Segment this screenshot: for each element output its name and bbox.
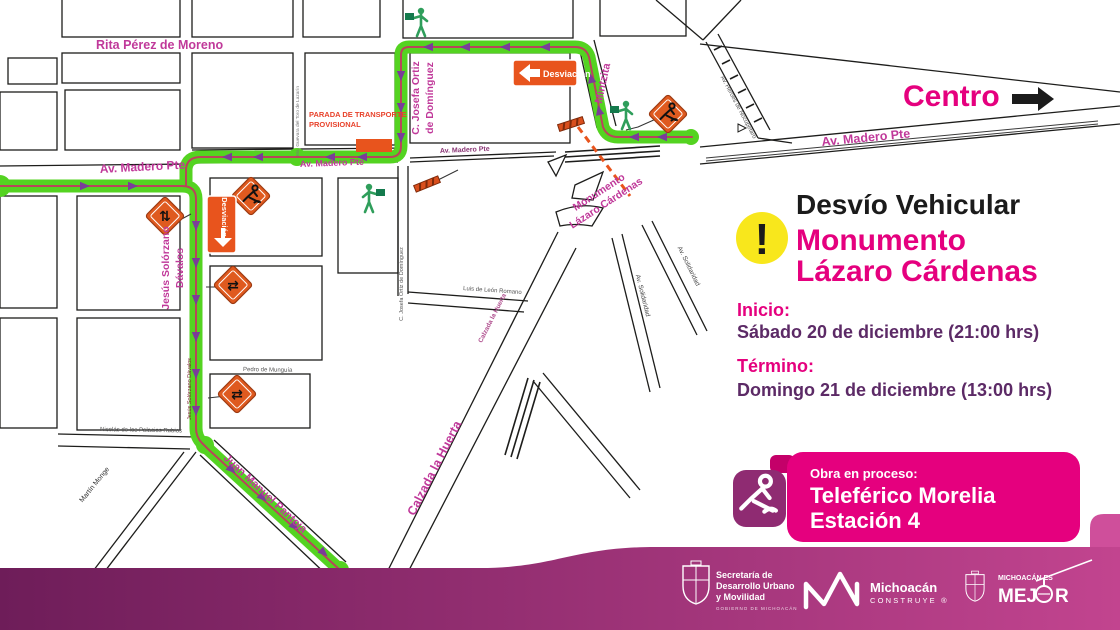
street-label-josefa-small: C. Josefa Ortiz de Domínguez [399,247,405,321]
start-label: Inicio: [737,300,790,320]
street-label-monge: Martín Monge [79,466,112,504]
panel-subject-line2: Lázaro Cárdenas [796,255,1038,288]
street-label-solorzano-line2: Dávalos [174,248,186,288]
street-label-munguia: Pedro de Munguía [243,367,293,374]
mejor-text-post: R [1055,586,1069,607]
obra-kicker: Obra en proceso: [810,466,918,481]
street-label-solidaridad-1: Av. Solidaridad [634,274,651,318]
parada-label-line1: PARADA DE TRANSPORTE [309,110,407,119]
street-label-huerta-big: Calzada la Huerta [405,418,465,518]
alert-exclamation: ! [755,215,770,264]
street-label-solidaridad-2: Av. Solidaridad [676,245,701,287]
roadwork-sign-worker-right [648,94,688,134]
street-label-madero-mid: Av. Madero Pte [300,157,364,169]
sedum-line2: Desarrollo Urbano [716,581,795,591]
parada-label-line2: PROVISIONAL [309,120,361,129]
sedum-subtitle: GOBIERNO DE MICHOACÁN [716,605,798,611]
footer-band [0,547,1120,630]
obra-line2: Estación 4 [810,508,921,533]
street-label-josefa-line1: C. Josefa Ortiz [410,61,422,135]
street-label-madero-left: Av. Madero Pte [99,158,185,176]
street-label-solorzano-small: Jesús Solórzano Dávalos [187,358,193,420]
two-way-horizontal-arrows-icon: ⇄ [231,387,243,403]
street-label-palacios: Nicolás de los Palacios Rubios [100,427,182,434]
desviacion-sign-vertical: Desviación [207,196,236,253]
construye-line1: Michoacán [870,580,937,595]
detour-infographic: ⇅ ⇄ ⇄ PARADA DE TRANSPORTE PROVISIONAL D… [0,0,1120,630]
street-label-solorzano-line1: Jesús Solórzano [160,226,172,309]
desviacion-label: Desviación [543,69,591,79]
right-arrow-icon [1012,87,1054,111]
end-label: Término: [737,356,814,376]
desviacion-sign-horizontal: Desviación [513,60,591,86]
obra-box: Obra en proceso: Teleférico Morelia Esta… [733,452,1080,542]
info-panel: ! Desvío Vehicular Monumento Lázaro Cárd… [736,189,1052,400]
end-value: Domingo 21 de diciembre (13:00 hrs) [737,380,1052,400]
barrier-icon-2 [414,176,441,192]
bus-stop-marker [356,139,392,152]
sedum-line1: Secretaría de [716,570,773,580]
obra-line1: Teleférico Morelia [810,483,996,508]
street-label-pantoja: Juan Manuel Pantoja [221,452,310,536]
street-label-huerta-small: Calzada la Huerta [477,292,508,344]
start-value: Sábado 20 de diciembre (21:00 hrs) [737,322,1039,342]
street-label-rita-perez: Rita Pérez de Moreno [96,38,223,52]
street-label-luis: Luis de León Romano [463,286,523,296]
centro-direction: Centro [903,80,1054,113]
detour-map-graphic: ⇅ ⇄ ⇄ PARADA DE TRANSPORTE PROVISIONAL D… [0,0,1120,630]
mejor-text-pre: MEJ [998,586,1037,607]
construye-line2: CONSTRUYE ® [870,596,949,605]
panel-title: Desvío Vehicular [796,189,1020,220]
street-label-guevara: Ma. Guevara del Toro de Lazarín [295,86,301,156]
centro-label: Centro [903,80,1000,113]
panel-subject-line1: Monumento [796,224,966,257]
two-way-horizontal-arrows-icon: ⇄ [227,278,239,294]
footer-corner-tab [1090,514,1120,547]
sedum-line3: y Movilidad [716,592,765,602]
street-label-josefa-line2: de Domínguez [424,62,436,134]
two-way-vertical-arrows-icon: ⇅ [159,209,171,225]
street-label-madero-small: Av. Madero Pte [440,146,490,155]
